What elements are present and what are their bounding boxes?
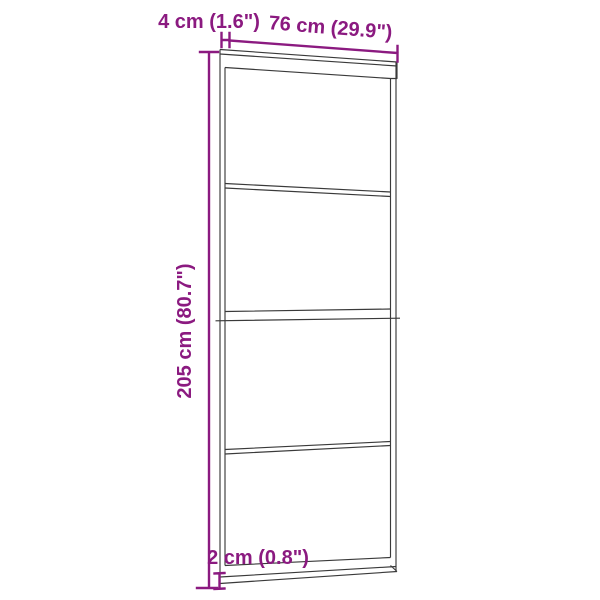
- height-dimension-line: [197, 52, 218, 588]
- product-dimension-diagram: 4 cm (1.6") 76 cm (29.9") 205 cm (80.7")…: [0, 0, 600, 600]
- door-drawing: [216, 50, 401, 584]
- door-height-label: 205 cm (80.7"): [174, 263, 196, 398]
- dimension-labels: 4 cm (1.6") 76 cm (29.9") 205 cm (80.7")…: [158, 11, 393, 569]
- track-width-label: 4 cm (1.6"): [158, 11, 260, 33]
- door-top-rail: [220, 50, 397, 79]
- glass-divider-2: [216, 309, 401, 321]
- door-frame-stiles: [220, 50, 396, 584]
- track-width-bracket: [222, 33, 230, 47]
- door-width-label: 76 cm (29.9"): [268, 12, 393, 44]
- glass-divider-1: [225, 184, 391, 197]
- bottom-rail-height-label: 2 cm (0.8"): [207, 547, 309, 569]
- width-dimension-line: [230, 41, 398, 62]
- bottom-rail-bracket: [215, 573, 225, 589]
- glass-divider-3: [225, 442, 391, 455]
- sliding-door-dimension-drawing: 4 cm (1.6") 76 cm (29.9") 205 cm (80.7")…: [0, 0, 600, 600]
